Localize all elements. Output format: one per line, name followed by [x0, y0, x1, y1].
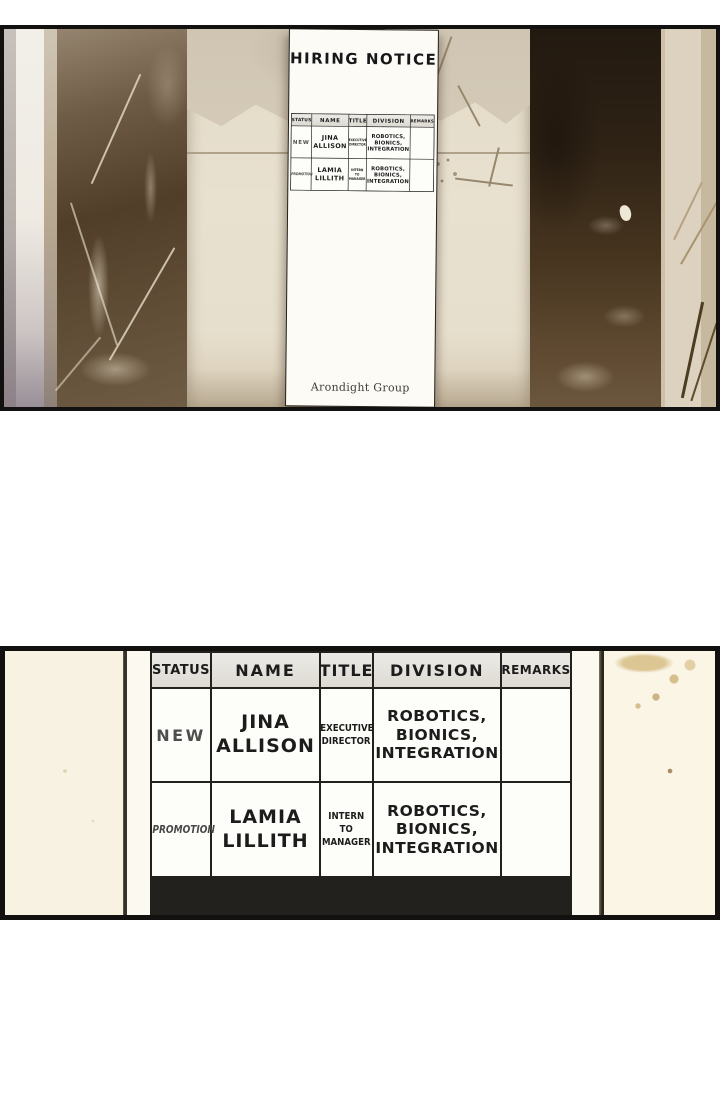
cell-status-row1: NEW [152, 689, 210, 781]
mini-cell-name: JINA ALLISON [312, 126, 349, 158]
notice-title: HIRING NOTICE [290, 49, 438, 69]
mini-cell-title-text: EXECUTIVE DIRECTOR [349, 138, 367, 147]
mini-cell-title-text: INTERN TO MANAGER [349, 168, 366, 181]
mini-col-header-title: TITLE [349, 115, 366, 127]
notice-mini-table: STATUS NAME TITLE DIVISION REMARKS NEW J… [290, 113, 435, 193]
mini-cell-status: NEW [291, 126, 311, 157]
cell-title-row2: INTERN TO MANAGER [321, 783, 372, 876]
mini-cell-status: PROMOTION [291, 158, 311, 190]
hiring-table: STATUS NAME TITLE DIVISION REMARKS NEW J… [150, 651, 572, 915]
wall-streak [681, 302, 704, 398]
marble-column-left [57, 29, 187, 407]
cell-remarks-row2 [502, 783, 570, 876]
notice-signature: Arondight Group [286, 380, 434, 395]
mini-cell-division: ROBOTICS, BIONICS, INTEGRATION [366, 159, 409, 191]
wall-tan-strip [44, 29, 57, 407]
marble-column-right [530, 29, 661, 407]
cell-status-text: PROMOTION [152, 823, 210, 836]
mini-cell-remarks [410, 159, 433, 191]
cell-division-row2: ROBOTICS, BIONICS, INTEGRATION [374, 783, 500, 876]
marble-white-fleck [618, 204, 632, 222]
marble-vein [109, 247, 176, 361]
col-header-status: STATUS [152, 653, 210, 687]
wall-left-section [5, 651, 123, 915]
top-panel: 2 HIRING NOTICE STATUS NAME TITLE DIVIS [0, 25, 720, 411]
mini-col-header-division: DIVISION [367, 115, 410, 127]
comic-page: 2 HIRING NOTICE STATUS NAME TITLE DIVIS [0, 0, 720, 1107]
marble-vein [70, 202, 118, 345]
wall-edge-strip [4, 29, 16, 407]
mini-cell-status-text: PROMOTION [291, 172, 311, 177]
wall-right-strip [661, 29, 716, 407]
col-header-division: DIVISION [374, 653, 500, 687]
mini-cell-title: INTERN TO MANAGER [348, 159, 366, 191]
mini-col-header-status: STATUS [292, 114, 312, 126]
marble-vein [91, 74, 142, 184]
col-header-remarks: REMARKS [502, 653, 570, 687]
cell-division-row1: ROBOTICS, BIONICS, INTEGRATION [374, 689, 500, 781]
cell-title-text: EXECUTIVE DIRECTOR [321, 722, 373, 748]
cell-remarks-row1 [502, 689, 570, 781]
cell-status-row2: PROMOTION [152, 783, 210, 876]
mini-col-header-name: NAME [312, 114, 348, 126]
cell-name-row2: LAMIA LILLITH [212, 783, 319, 876]
hiring-notice-paper: HIRING NOTICE STATUS NAME TITLE DIVISION… [285, 28, 439, 408]
col-header-name: NAME [212, 653, 319, 687]
marble-vein [55, 337, 102, 392]
wall-crack [455, 177, 513, 186]
mini-cell-title: EXECUTIVE DIRECTOR [349, 127, 367, 158]
wall-light-strip [16, 29, 44, 407]
cell-name-row1: JINA ALLISON [212, 689, 319, 781]
col-header-title: TITLE [321, 653, 372, 687]
mini-col-header-remarks: REMARKS [411, 115, 434, 127]
mini-cell-remarks [410, 127, 433, 159]
mini-cell-name: LAMIA LILLITH [311, 158, 348, 190]
cell-title-text: INTERN TO MANAGER [322, 810, 371, 849]
cell-title-row1: EXECUTIVE DIRECTOR [321, 689, 372, 781]
bottom-panel: STATUS NAME TITLE DIVISION REMARKS NEW J… [0, 646, 720, 920]
mini-hiring-table: STATUS NAME TITLE DIVISION REMARKS NEW J… [290, 113, 434, 192]
mini-cell-division: ROBOTICS, BIONICS, INTEGRATION [367, 127, 410, 159]
wall-right-section [604, 651, 715, 915]
wall-seam-left [123, 651, 127, 915]
